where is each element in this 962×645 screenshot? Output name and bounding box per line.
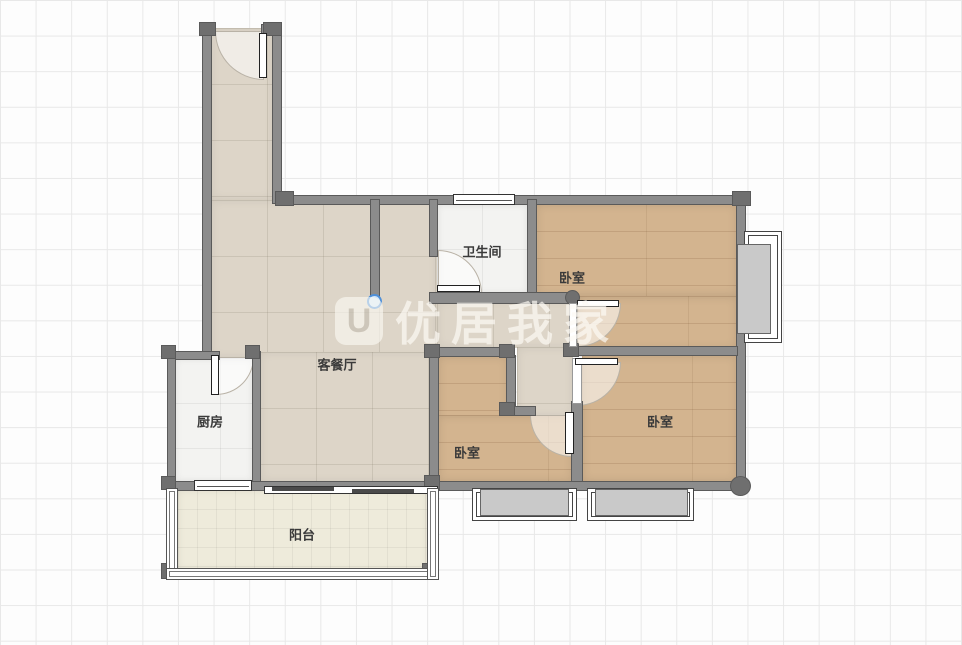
wall-stub-living[interactable] [371,200,379,302]
wall-bathroom-bottom[interactable] [430,293,578,303]
wall-corridor-left[interactable] [203,25,211,355]
wall-between-right-bedrooms[interactable] [568,347,737,355]
wall-corner [733,192,750,205]
room-floor-living-upper[interactable] [211,200,437,358]
sliding-door-panel[interactable] [352,489,414,493]
room-label-bedroom-middle: 卧室 [454,443,480,462]
wall-corner-rounded [731,477,750,495]
window-kitchen-bottom[interactable] [194,480,252,491]
room-label-living-dining: 客餐厅 [317,355,356,374]
wall-corner [500,345,514,357]
wall-bedroom-middle-left[interactable] [430,348,438,490]
door-leaf-bathroom[interactable] [437,285,480,292]
wall-corner [425,345,439,357]
wall-bathroom-right[interactable] [528,200,536,300]
balcony-rail-left[interactable] [166,488,178,580]
door-leaf-kitchen[interactable] [211,355,219,395]
door-leaf-bedroom-middle[interactable] [565,412,574,454]
wall-corner [500,403,514,415]
balcony-rail-right[interactable] [427,488,439,580]
balcony-rail-bottom[interactable] [166,568,439,580]
wall-endpoint-handle[interactable] [367,294,382,309]
room-label-bathroom: 卫生间 [462,242,501,261]
room-label-balcony: 阳台 [289,525,315,544]
room-label-kitchen: 厨房 [197,412,223,431]
room-floor-passage[interactable] [437,300,578,348]
floorplan-canvas: U 优居我家 卫生间 卧室 客餐厅 厨房 卧室 卧室 阳台 [0,0,962,645]
wall-bathroom-left[interactable] [430,200,437,256]
door-leaf-bedroom-top-right[interactable] [577,300,619,307]
door-frame-bedroom-top-right [569,303,577,347]
wall-bedroom-middle-top[interactable] [430,348,508,356]
wall-corner [246,346,259,358]
bay-window-bottom-right[interactable] [595,489,688,516]
wall-bedroom-middle-right[interactable] [507,356,515,409]
door-leaf-entry[interactable] [259,33,267,78]
door-leaf-bedroom-bottom-right[interactable] [575,358,618,365]
sliding-door-panel[interactable] [272,487,334,491]
wall-corner [200,23,215,35]
wall-corner [162,346,175,358]
wall-kitchen-right[interactable] [253,352,260,482]
wall-kitchen-left[interactable] [168,352,175,490]
wall-corridor-right[interactable] [273,25,281,203]
window-bathroom-top[interactable] [453,194,515,205]
wall-corner [276,192,293,205]
room-label-bedroom-top-right: 卧室 [559,268,585,287]
bay-window-right[interactable] [737,244,771,334]
bay-window-bottom-left[interactable] [480,489,569,516]
room-label-bedroom-bottom-right: 卧室 [647,412,673,431]
